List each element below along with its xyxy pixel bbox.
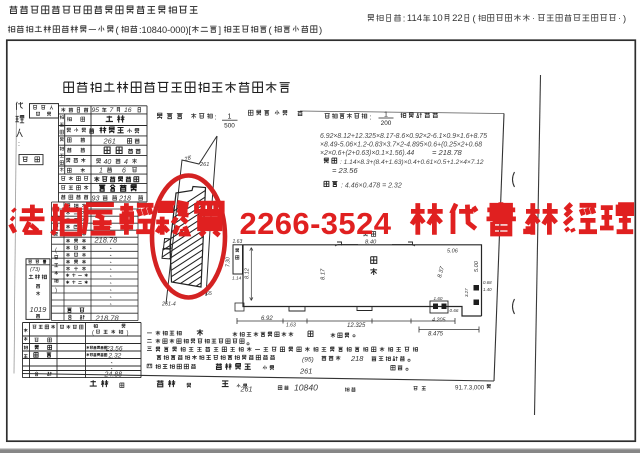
svg-text:218.78: 218.78 <box>95 313 120 322</box>
svg-text:200: 200 <box>381 120 392 127</box>
svg-text:12.325: 12.325 <box>347 323 366 329</box>
svg-text:10840: 10840 <box>294 382 318 392</box>
svg-text:22: 22 <box>452 13 463 24</box>
svg-text:0.68: 0.68 <box>483 280 492 285</box>
svg-text::: : <box>215 113 217 122</box>
svg-text:: 4.46×0.478 = 2.32: : 4.46×0.478 = 2.32 <box>341 182 402 189</box>
svg-text:261-4: 261-4 <box>161 302 176 308</box>
svg-text:261: 261 <box>240 384 253 393</box>
svg-text:·: · <box>618 13 621 23</box>
svg-text:16: 16 <box>124 107 132 114</box>
svg-text:23.56: 23.56 <box>105 346 123 353</box>
svg-text:2.32: 2.32 <box>108 353 122 360</box>
svg-text:1: 1 <box>99 168 103 175</box>
svg-text:7.30: 7.30 <box>226 257 232 267</box>
svg-text:1.40: 1.40 <box>483 287 492 292</box>
svg-text:(: ( <box>269 25 273 36</box>
svg-text:6: 6 <box>122 168 126 175</box>
svg-text:3.27: 3.27 <box>464 288 469 297</box>
svg-text:1.60: 1.60 <box>434 296 443 301</box>
svg-text:1: 1 <box>228 114 232 121</box>
svg-text:40: 40 <box>104 159 112 166</box>
svg-text:261: 261 <box>299 366 312 375</box>
svg-text:= 23.56: = 23.56 <box>332 166 358 175</box>
svg-text:5.00: 5.00 <box>474 260 480 272</box>
svg-text:= 218.78: = 218.78 <box>432 148 463 157</box>
svg-text:5.06: 5.06 <box>447 249 459 255</box>
svg-text:(: ( <box>116 25 120 36</box>
svg-text:1: 1 <box>384 111 388 118</box>
svg-text:]: ] <box>219 25 222 35</box>
svg-text::10840-000)[: :10840-000)[ <box>139 25 192 35</box>
svg-text:): ) <box>127 330 129 336</box>
svg-text:2266-3524: 2266-3524 <box>240 206 392 241</box>
svg-text::: : <box>18 141 20 148</box>
svg-text:261: 261 <box>103 137 116 146</box>
svg-text:·: · <box>532 13 535 23</box>
svg-text::: : <box>370 112 372 121</box>
svg-text:500: 500 <box>224 122 235 129</box>
svg-text:10: 10 <box>432 13 443 24</box>
svg-text:114: 114 <box>407 13 422 24</box>
svg-text:218: 218 <box>118 194 131 203</box>
svg-text:8.12: 8.12 <box>245 267 251 279</box>
svg-text:93: 93 <box>92 194 100 203</box>
svg-text:8.17: 8.17 <box>321 268 327 280</box>
svg-text:6.92×8.12+12.325×8.17-8.6×0.92: 6.92×8.12+12.325×8.17-8.6×0.92×2-6.1×0.9… <box>320 133 487 140</box>
svg-text:1.14: 1.14 <box>232 276 242 282</box>
svg-text:4.205: 4.205 <box>432 318 446 324</box>
svg-text:(73): (73) <box>30 267 40 273</box>
svg-text:(95): (95) <box>302 356 314 363</box>
svg-text:218: 218 <box>350 354 364 363</box>
svg-text:(: ( <box>92 330 94 336</box>
svg-text:95: 95 <box>92 107 100 114</box>
svg-text:7: 7 <box>110 107 114 114</box>
svg-text:): ) <box>55 288 57 294</box>
svg-text:: 1.14×8.3+(8.4+1.63)×0.4+0.61: : 1.14×8.3+(8.4+1.63)×0.4+0.61×0.5+1.2×4… <box>340 159 484 166</box>
svg-text:6.92: 6.92 <box>261 316 273 322</box>
svg-text:218.78: 218.78 <box>94 236 118 245</box>
svg-text:0.66: 0.66 <box>450 308 459 313</box>
svg-text:): ) <box>623 12 626 23</box>
svg-text:): ) <box>319 25 322 36</box>
svg-text:8.475: 8.475 <box>428 332 444 338</box>
svg-text:24.88: 24.88 <box>104 372 123 379</box>
svg-text:1.63: 1.63 <box>286 323 296 329</box>
svg-text:1019: 1019 <box>30 305 48 314</box>
svg-text:(: ( <box>473 12 477 23</box>
svg-text:(: ( <box>55 248 57 254</box>
svg-text:91.7.3,000: 91.7.3,000 <box>455 384 485 391</box>
svg-text::: : <box>403 12 406 23</box>
svg-text:261: 261 <box>199 162 209 168</box>
svg-text:×2×0.6+(2+0.63)×0.1×1.56).44: ×2×0.6+(2+0.63)×0.1×1.56).44 <box>320 150 414 157</box>
svg-text:4: 4 <box>124 159 128 166</box>
